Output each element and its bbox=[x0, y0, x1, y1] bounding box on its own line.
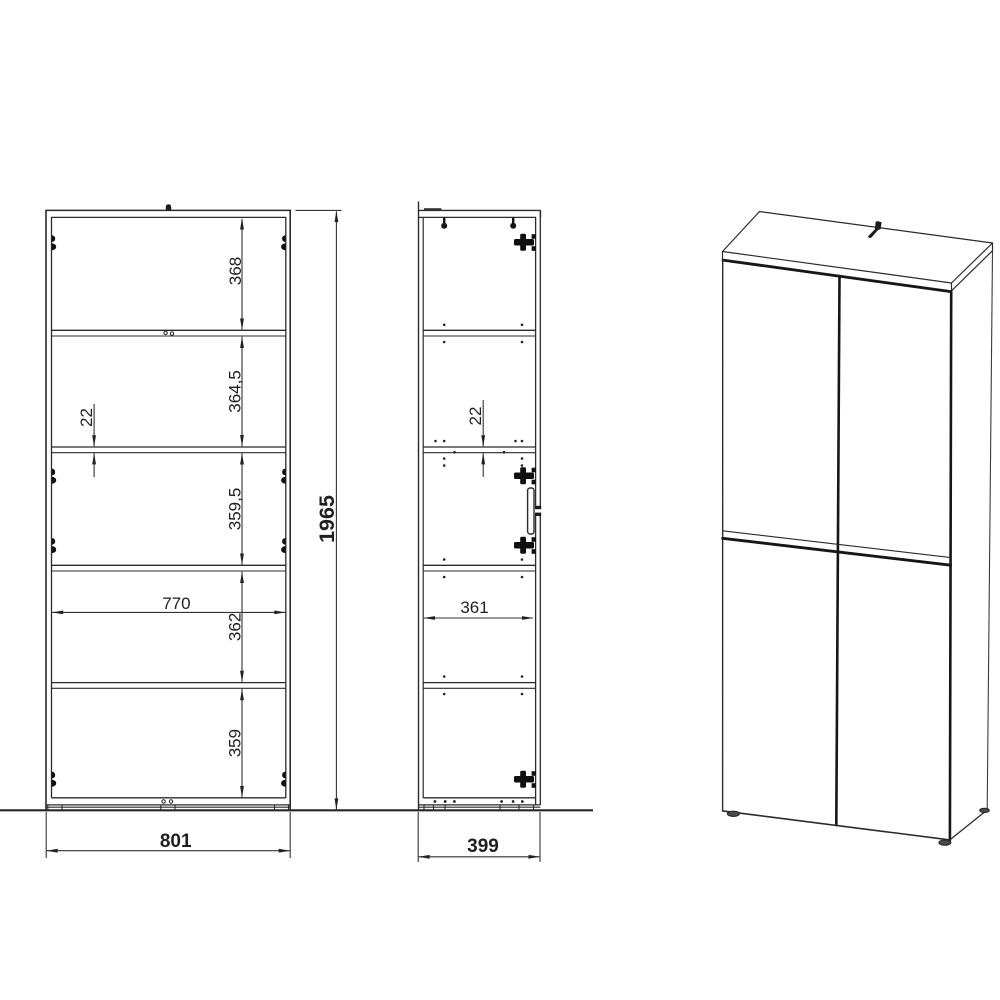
svg-text:770: 770 bbox=[162, 594, 190, 613]
svg-text:1965: 1965 bbox=[315, 495, 339, 543]
svg-text:22: 22 bbox=[77, 408, 96, 427]
svg-text:362: 362 bbox=[226, 613, 245, 641]
svg-text:359,5: 359,5 bbox=[226, 488, 245, 531]
svg-text:361: 361 bbox=[460, 598, 488, 617]
svg-text:399: 399 bbox=[467, 836, 499, 857]
svg-text:364,5: 364,5 bbox=[226, 370, 245, 413]
svg-text:801: 801 bbox=[160, 831, 192, 852]
svg-text:368: 368 bbox=[226, 257, 245, 285]
svg-text:359: 359 bbox=[226, 729, 245, 757]
svg-text:22: 22 bbox=[466, 407, 485, 426]
